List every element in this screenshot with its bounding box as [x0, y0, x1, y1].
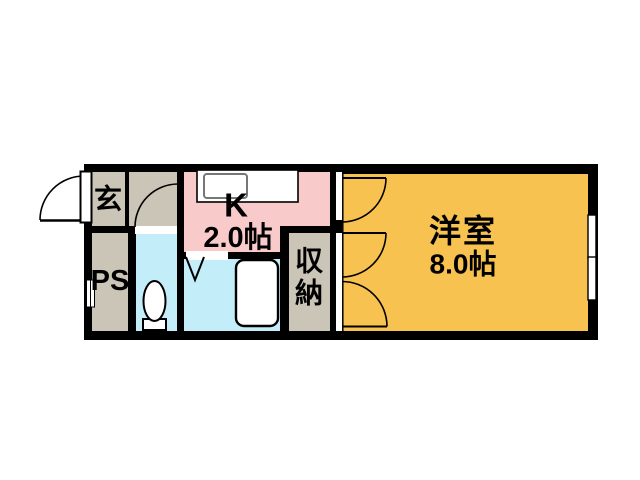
- window-pane-lower: [588, 257, 596, 300]
- door-track-strip: [336, 172, 342, 331]
- kitchen-label: K: [224, 187, 248, 224]
- wall-stub-between-doors: [330, 220, 342, 233]
- bathtub-icon: [236, 260, 278, 326]
- storage-label-char-1: 収: [295, 246, 324, 277]
- western-room-size-label: 8.0帖: [430, 249, 497, 280]
- western-room-label: 洋室: [429, 213, 497, 249]
- floor-plan-canvas: 玄 PS K 2.0帖 収 納 洋室 8.0帖: [0, 0, 640, 480]
- pipe-space-label: PS: [91, 265, 130, 297]
- hall-toilet-door-opening: [135, 226, 177, 234]
- kitchen-size-label: 2.0帖: [203, 221, 272, 254]
- window-pane-upper: [588, 215, 596, 258]
- toilet-bowl: [144, 281, 166, 321]
- sliding-window: [588, 215, 596, 300]
- storage-label-char-2: 納: [295, 277, 323, 309]
- entrance-label: 玄: [94, 183, 122, 215]
- floor-plan-page: 玄 PS K 2.0帖 収 納 洋室 8.0帖: [0, 0, 640, 480]
- entrance-door-leaf: [81, 172, 92, 223]
- toilet-icon: [143, 281, 166, 330]
